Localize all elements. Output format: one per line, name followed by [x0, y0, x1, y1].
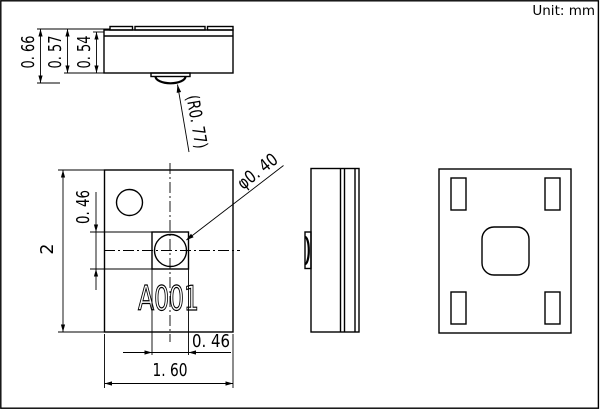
side-view: 0. 66 0. 57 0. 54 (R0. 77) — [19, 27, 233, 153]
center-pad — [482, 227, 529, 275]
arrowhead — [61, 325, 65, 333]
arrowhead — [38, 76, 42, 84]
top-view: A001 2 0. 46 0. 46 1. 6 — [38, 150, 284, 388]
dim-text-hole-offset-horizontal: 0. 46 — [192, 332, 230, 352]
bottom-view — [439, 169, 571, 333]
front-view-outline — [311, 169, 359, 333]
dim-text-lid-height: 0. 57 — [46, 36, 66, 69]
terminal-pad — [451, 292, 466, 324]
dim-text-width: 1. 60 — [153, 361, 188, 381]
dim-text-total-height: 0. 66 — [19, 36, 39, 69]
dome-arc — [156, 77, 186, 84]
arrowhead — [186, 234, 194, 241]
arrowhead — [65, 29, 69, 37]
arrowhead — [61, 170, 65, 178]
arrowhead — [38, 29, 42, 37]
terminal-pad — [545, 292, 560, 324]
bottom-view-outline — [439, 169, 571, 333]
arrowhead — [94, 32, 98, 40]
dim-text-body-height: 0. 54 — [75, 36, 95, 69]
dim-text-hole-offset-vertical: 0. 46 — [74, 190, 94, 224]
front-view — [305, 169, 359, 333]
dome-flange — [151, 73, 190, 77]
arrowhead — [94, 225, 98, 233]
arrowhead — [226, 381, 234, 385]
drawing-sheet: Unit: mm 0. 66 0. 57 0. 54 — [0, 0, 600, 414]
marking-text: A001 — [138, 279, 199, 319]
terminal-pad — [451, 178, 466, 210]
dim-text-dome-radius: (R0. 77) — [181, 94, 210, 151]
arrowhead — [65, 66, 69, 74]
arrowhead — [105, 381, 113, 385]
pin1-indicator-circle — [117, 190, 143, 216]
arrowhead — [94, 66, 98, 74]
dim-text-height: 2 — [38, 243, 58, 254]
unit-note: Unit: mm — [532, 3, 595, 19]
arrowhead — [94, 269, 98, 277]
arrowhead — [145, 350, 153, 354]
terminal-pad — [545, 178, 560, 210]
technical-drawing: Unit: mm 0. 66 0. 57 0. 54 — [0, 0, 600, 414]
